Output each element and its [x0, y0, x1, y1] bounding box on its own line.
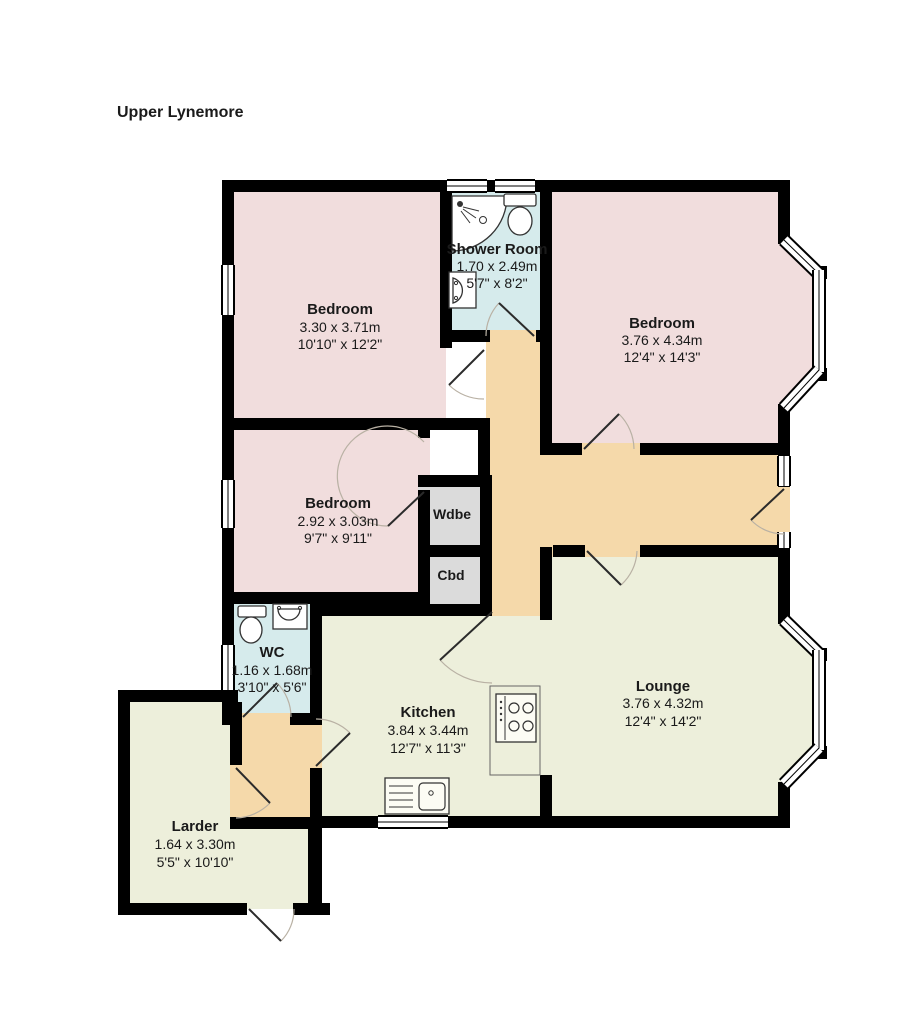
- wall: [540, 443, 582, 455]
- wall: [640, 545, 790, 557]
- room-dim-m-bedroom-3: 2.92 x 3.03m: [298, 513, 379, 529]
- wall: [308, 829, 322, 915]
- wall: [778, 795, 790, 828]
- wall: [230, 702, 242, 765]
- room-dim-ft-bedroom-2: 12'4" x 14'3": [624, 349, 701, 365]
- wall: [440, 330, 490, 342]
- wall: [118, 690, 238, 702]
- wall: [480, 475, 492, 616]
- room-dim-ft-bedroom-1: 10'10" x 12'2": [298, 336, 383, 352]
- room-dim-ft-kitchen: 12'7" x 11'3": [390, 740, 466, 756]
- room-dim-m-lounge: 3.76 x 4.32m: [623, 695, 704, 711]
- room-label-wc: WC: [260, 644, 285, 661]
- kitchen-sink-icon: [385, 778, 449, 814]
- room-dim-ft-shower-room: 5'7" x 8'2": [466, 275, 527, 291]
- room-label-bedroom-2: Bedroom: [629, 315, 695, 332]
- wall: [536, 330, 552, 342]
- wall: [222, 180, 234, 725]
- wall: [553, 545, 585, 557]
- floorplan-drawing: Upper Lynemore Bedroom 3.30 x 3.71m 10'1…: [0, 0, 897, 1024]
- wall: [640, 443, 790, 455]
- wall: [540, 192, 552, 455]
- room-dim-m-shower-room: 1.70 x 2.49m: [457, 258, 538, 274]
- wall: [418, 430, 430, 438]
- room-dim-ft-larder: 5'5" x 10'10": [157, 854, 234, 870]
- wall: [440, 192, 452, 348]
- room-dim-m-larder: 1.64 x 3.30m: [155, 836, 236, 852]
- wall: [310, 768, 322, 816]
- wall: [118, 690, 130, 915]
- room-dim-m-bedroom-2: 3.76 x 4.34m: [622, 332, 703, 348]
- room-dim-ft-lounge: 12'4" x 14'2": [625, 713, 702, 729]
- lobby-floor: [230, 713, 322, 825]
- wall: [222, 418, 490, 430]
- wall: [230, 817, 322, 829]
- room-label-lounge: Lounge: [636, 678, 690, 695]
- room-label-kitchen: Kitchen: [400, 704, 455, 721]
- room-label-bedroom-3: Bedroom: [305, 495, 371, 512]
- closet-label-wardrobe: Wdbe: [433, 506, 471, 522]
- closet-label-cupboard: Cbd: [437, 567, 464, 583]
- wall: [540, 775, 552, 828]
- wall: [118, 903, 247, 915]
- hob-icon: [496, 694, 536, 742]
- sink-icon: [273, 604, 307, 629]
- room-dim-m-wc: 1.16 x 1.68m: [232, 662, 313, 678]
- room-dim-ft-bedroom-3: 9'7" x 9'11": [304, 530, 372, 546]
- wall: [540, 547, 552, 620]
- room-label-shower-room: Shower Room: [447, 241, 548, 258]
- floorplan-page: Upper Lynemore Bedroom 3.30 x 3.71m 10'1…: [0, 0, 897, 1024]
- room-label-larder: Larder: [172, 818, 219, 835]
- room-dim-m-kitchen: 3.84 x 3.44m: [388, 722, 469, 738]
- wall: [310, 604, 490, 616]
- room-label-bedroom-1: Bedroom: [307, 301, 373, 318]
- room-dim-ft-wc: 3'10" x 5'6": [238, 679, 307, 695]
- wall: [222, 592, 430, 604]
- wall: [778, 557, 790, 618]
- room-dim-m-bedroom-1: 3.30 x 3.71m: [300, 319, 381, 335]
- page-title: Upper Lynemore: [117, 104, 244, 121]
- door: [249, 909, 294, 941]
- door: [449, 350, 484, 399]
